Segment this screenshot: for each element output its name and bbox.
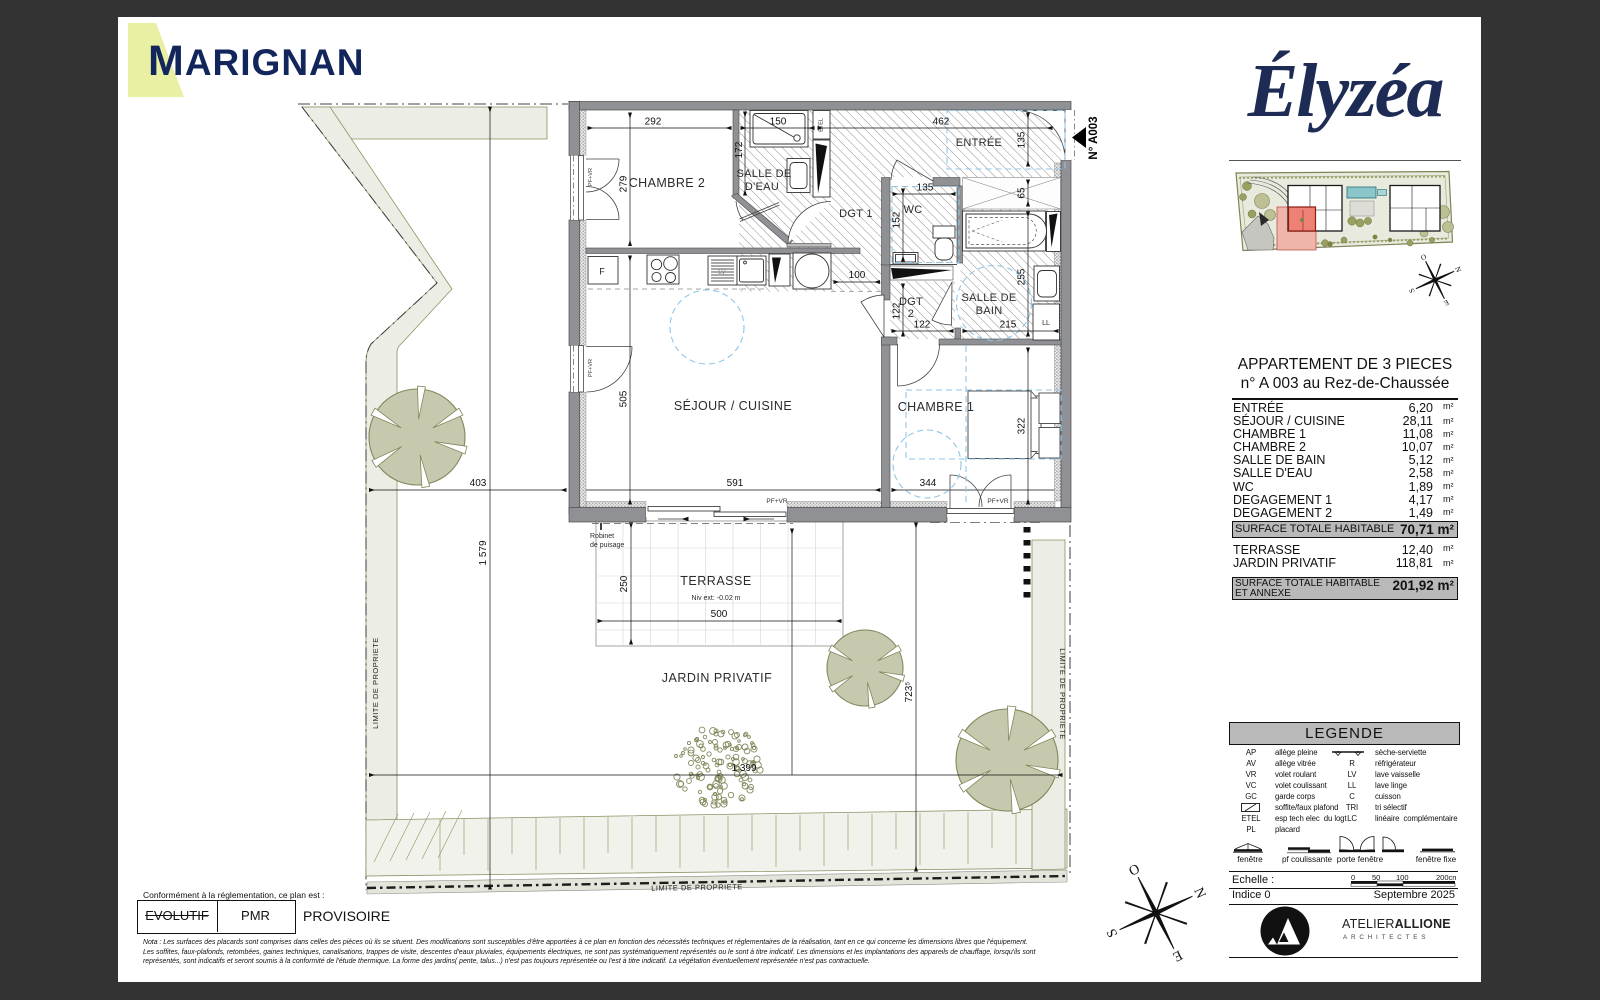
svg-text:N: N — [1190, 886, 1208, 902]
svg-text:500: 500 — [711, 609, 728, 620]
svg-text:LIMITE DE PROPRIETE: LIMITE DE PROPRIETE — [651, 882, 743, 893]
svg-text:SÉJOUR / CUISINE: SÉJOUR / CUISINE — [674, 398, 792, 413]
svg-text:E: E — [1442, 298, 1451, 308]
svg-text:292: 292 — [645, 117, 662, 128]
svg-text:MARIGNAN: MARIGNAN — [148, 37, 365, 85]
svg-text:215: 215 — [1000, 320, 1017, 331]
svg-text:Robinet: Robinet — [590, 533, 614, 540]
svg-text:N° A003: N° A003 — [1088, 116, 1100, 159]
svg-text:723⁵: 723⁵ — [904, 682, 915, 703]
svg-text:1 579: 1 579 — [478, 540, 489, 565]
svg-text:LV: LV — [718, 269, 726, 276]
svg-text:0: 0 — [1351, 873, 1355, 882]
svg-text:PF+VR: PF+VR — [588, 359, 594, 377]
svg-text:D'EAU: D'EAU — [745, 181, 779, 193]
svg-text:JARDIN PRIVATIF: JARDIN PRIVATIF — [662, 671, 773, 685]
svg-text:ATELIERALLIONE: ATELIERALLIONE — [1342, 917, 1451, 931]
svg-text:322: 322 — [1017, 417, 1028, 434]
svg-text:LL: LL — [1042, 320, 1050, 327]
svg-text:462: 462 — [933, 117, 950, 128]
svg-text:505: 505 — [619, 390, 630, 407]
svg-text:LIMITE DE PROPRIETE: LIMITE DE PROPRIETE — [371, 637, 380, 729]
svg-text:BAIN: BAIN — [976, 305, 1003, 317]
svg-text:ARCHITECTES: ARCHITECTES — [1343, 934, 1429, 941]
svg-text:DGT: DGT — [899, 296, 923, 308]
svg-text:O: O — [1127, 862, 1143, 880]
svg-text:fenêtre: fenêtre — [1237, 855, 1263, 864]
svg-text:S: S — [1407, 287, 1417, 295]
svg-text:PF+VR: PF+VR — [987, 498, 1008, 505]
svg-text:SALLE DE: SALLE DE — [737, 168, 792, 180]
svg-text:122: 122 — [914, 320, 931, 331]
svg-text:LIMITE DE PROPRIETE: LIMITE DE PROPRIETE — [1058, 648, 1067, 740]
svg-text:ENTRÉE: ENTRÉE — [956, 136, 1002, 149]
svg-text:CHAMBRE 1: CHAMBRE 1 — [898, 400, 975, 414]
svg-text:PF+VR: PF+VR — [766, 498, 787, 505]
svg-text:344: 344 — [920, 478, 937, 489]
svg-text:TERRASSE: TERRASSE — [680, 574, 751, 588]
svg-text:WC: WC — [904, 204, 923, 216]
svg-text:S: S — [1104, 926, 1121, 939]
svg-text:150: 150 — [770, 117, 787, 128]
svg-text:pf coulissante: pf coulissante — [1282, 855, 1333, 864]
svg-text:DGT 1: DGT 1 — [839, 208, 873, 220]
svg-text:65: 65 — [1017, 187, 1028, 199]
svg-text:172: 172 — [734, 141, 745, 158]
svg-text:50: 50 — [1372, 873, 1380, 882]
svg-text:N: N — [1453, 265, 1464, 274]
svg-text:ETEL: ETEL — [819, 118, 825, 132]
svg-text:100: 100 — [849, 270, 866, 281]
svg-text:152: 152 — [892, 211, 903, 228]
svg-text:porte fenêtre: porte fenêtre — [1337, 855, 1384, 864]
svg-text:Niv ext: -0.02 m: Niv ext: -0.02 m — [691, 595, 740, 602]
svg-text:403: 403 — [470, 478, 487, 489]
svg-text:1 399: 1 399 — [731, 763, 756, 774]
svg-text:591: 591 — [727, 478, 744, 489]
svg-text:SALLE DE: SALLE DE — [962, 292, 1017, 304]
svg-text:2: 2 — [908, 308, 914, 320]
svg-text:250: 250 — [619, 575, 630, 592]
svg-text:de puisage: de puisage — [590, 542, 624, 549]
svg-text:CHAMBRE 2: CHAMBRE 2 — [629, 176, 706, 190]
svg-text:fenêtre fixe: fenêtre fixe — [1416, 855, 1457, 864]
svg-text:255: 255 — [1017, 268, 1028, 285]
svg-text:100: 100 — [1396, 873, 1409, 882]
svg-text:O: O — [1419, 252, 1428, 263]
svg-text:F: F — [599, 267, 605, 277]
svg-text:PF+VR: PF+VR — [588, 168, 594, 186]
svg-text:135: 135 — [917, 183, 934, 194]
svg-text:E: E — [1170, 947, 1184, 964]
svg-text:135: 135 — [1017, 131, 1028, 148]
svg-text:200cm: 200cm — [1436, 873, 1456, 882]
